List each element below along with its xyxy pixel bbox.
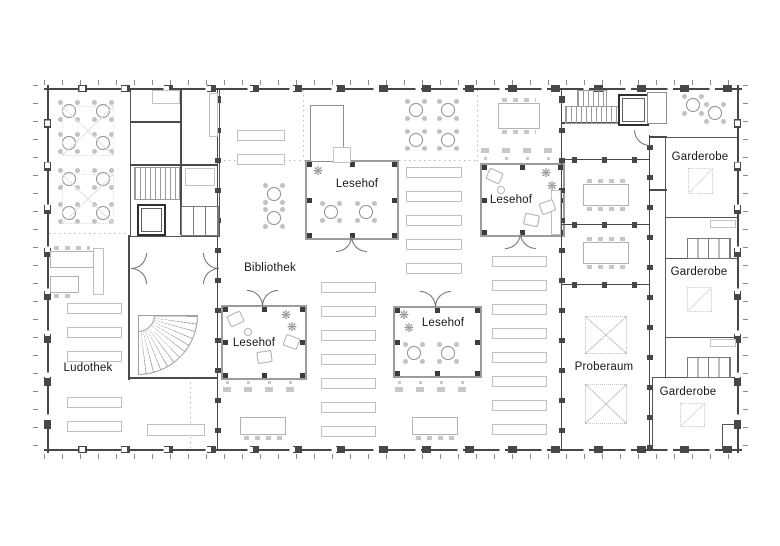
bookshelf	[492, 304, 547, 315]
exterior-wall	[734, 85, 741, 453]
interior-wall	[562, 282, 650, 288]
floor-plan: Ludothek Bibliothek Lesehof Lesehof Lese…	[0, 0, 780, 546]
round-table-with-chairs	[703, 101, 727, 125]
table-with-chairs	[50, 276, 79, 293]
bookshelf	[209, 93, 218, 137]
dotted-marking	[687, 287, 712, 312]
counter	[185, 168, 215, 186]
bookshelf	[93, 248, 104, 295]
study-carrels	[479, 147, 562, 161]
room-label-lesehof-lower-left: Lesehof	[233, 337, 275, 349]
kitchenette	[152, 90, 180, 104]
study-carrels	[221, 379, 302, 393]
plant-icon: ❋	[547, 180, 557, 192]
side-table	[244, 328, 252, 336]
door-arc	[634, 130, 650, 146]
bookshelf	[67, 303, 122, 314]
bookshelf	[67, 327, 122, 338]
table-with-chairs	[50, 251, 94, 268]
round-table-with-chairs	[436, 128, 460, 152]
floor-marking	[585, 384, 627, 424]
plant-icon: ❋	[541, 167, 551, 179]
room-label-garderobe-mid: Garderobe	[671, 266, 728, 278]
interior-wall	[128, 235, 130, 380]
dotted-line	[190, 382, 191, 448]
door-arc	[505, 233, 521, 249]
bookshelf	[67, 351, 122, 362]
curved-stairs	[138, 315, 198, 375]
bookshelf	[492, 328, 547, 339]
round-table-with-chairs	[404, 98, 428, 122]
exterior-wall	[44, 85, 742, 92]
bookshelf	[321, 426, 376, 437]
counter	[710, 220, 736, 228]
dimension-ticks	[743, 85, 748, 454]
bookshelf	[406, 239, 462, 250]
bookshelf	[551, 190, 561, 235]
bookshelf	[321, 282, 376, 293]
floor-marking	[585, 316, 627, 354]
bookshelf	[492, 280, 547, 291]
interior-wall	[130, 121, 180, 123]
floor-marking	[62, 106, 114, 156]
door-arc	[131, 253, 147, 269]
bookshelf	[492, 256, 547, 267]
room-label-lesehof-upper-right: Lesehof	[490, 194, 532, 206]
bookshelf	[406, 167, 462, 178]
bookshelf	[406, 215, 462, 226]
bookshelf	[321, 402, 376, 413]
door-arc	[336, 236, 352, 252]
room-label-garderobe-top: Garderobe	[672, 151, 729, 163]
door-arc	[420, 291, 436, 307]
plant-icon: ❋	[404, 322, 414, 334]
round-table-with-chairs	[404, 128, 428, 152]
floor-marking	[62, 174, 114, 224]
bookshelf	[67, 421, 122, 432]
bookshelf	[321, 330, 376, 341]
round-table-with-chairs	[354, 200, 378, 224]
study-carrels	[393, 379, 478, 393]
plant-icon: ❋	[399, 309, 409, 321]
round-table-with-chairs	[262, 182, 286, 206]
stairs	[577, 90, 607, 107]
bookshelf	[321, 378, 376, 389]
stairs	[565, 106, 619, 124]
dimension-ticks	[44, 454, 742, 459]
bookshelf	[492, 352, 547, 363]
bookshelf	[67, 397, 122, 408]
bookshelf	[406, 191, 462, 202]
dotted-line	[303, 90, 304, 160]
interior-wall	[130, 164, 218, 166]
desk-return	[333, 147, 351, 163]
exterior-wall	[44, 446, 742, 453]
interior-wall	[650, 189, 667, 191]
table-with-chairs	[583, 184, 629, 206]
round-table-with-chairs	[681, 93, 705, 117]
dotted-marking	[680, 403, 705, 427]
door-arc	[247, 290, 263, 306]
table-with-chairs	[583, 242, 629, 264]
interior-wall	[128, 377, 218, 379]
room-label-ludothek: Ludothek	[64, 362, 113, 374]
dimension-ticks	[33, 85, 38, 454]
interior-wall	[562, 157, 650, 163]
door-arc	[203, 253, 219, 269]
table-with-chairs	[498, 103, 540, 129]
round-table-with-chairs	[436, 98, 460, 122]
lockers	[687, 357, 731, 378]
side-table	[497, 186, 505, 194]
shaft	[647, 92, 667, 124]
dotted-line	[477, 90, 478, 163]
door-arc	[262, 290, 278, 306]
interior-wall	[562, 222, 650, 228]
door-arc	[435, 291, 451, 307]
room-label-lesehof-lower-mid: Lesehof	[422, 317, 464, 329]
round-table-with-chairs	[436, 341, 460, 365]
interior-wall	[650, 136, 667, 138]
interior-wall	[559, 88, 565, 450]
bookshelf	[237, 130, 285, 141]
plant-icon: ❋	[313, 165, 323, 177]
round-table-with-chairs	[319, 200, 343, 224]
door-arc	[203, 268, 219, 284]
bookshelf	[321, 354, 376, 365]
stairs	[134, 167, 180, 200]
dotted-line	[49, 233, 129, 234]
bookshelf	[147, 424, 205, 436]
plant-icon: ❋	[287, 321, 297, 333]
lockers	[181, 206, 219, 236]
counter	[710, 339, 736, 347]
lounge-chair	[256, 350, 273, 364]
table-with-chairs	[412, 417, 458, 435]
round-table-with-chairs	[262, 206, 286, 230]
room-label-lesehof-top: Lesehof	[336, 178, 378, 190]
lockers	[687, 238, 731, 259]
interior-wall	[647, 135, 653, 450]
room-label-proberaum: Proberaum	[575, 361, 634, 373]
door-arc	[520, 233, 536, 249]
round-table-with-chairs	[402, 341, 426, 365]
bookshelf	[492, 424, 547, 435]
bookshelf	[406, 263, 462, 274]
room-label-bibliothek: Bibliothek	[244, 262, 296, 274]
elevator	[137, 204, 166, 236]
exterior-wall	[44, 85, 51, 453]
room-label-garderobe-bottom: Garderobe	[660, 386, 717, 398]
dotted-marking	[688, 168, 713, 194]
door-arc	[131, 268, 147, 284]
door-arc	[351, 236, 367, 252]
bookshelf	[237, 154, 285, 165]
table-with-chairs	[240, 417, 286, 435]
bookshelf	[321, 306, 376, 317]
bookshelf	[492, 376, 547, 387]
bookshelf	[492, 400, 547, 411]
elevator	[618, 94, 649, 126]
